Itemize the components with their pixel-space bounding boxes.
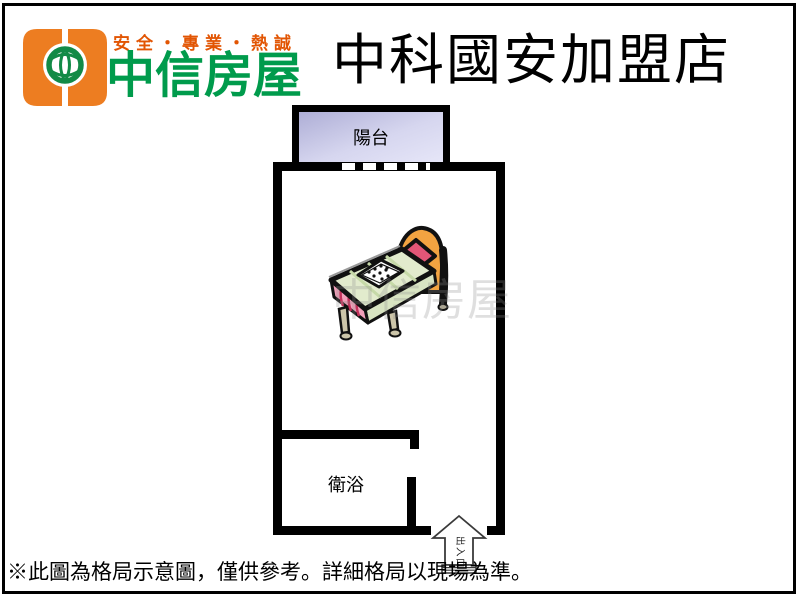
brand-logo: [23, 29, 107, 106]
brand-name: 中信房屋: [106, 51, 302, 100]
floorplan-page: 安全・專業・熱誠 中信房屋 中科國安加盟店 陽台 衛浴: [0, 0, 800, 600]
bathroom-wall-door-stub: [410, 430, 419, 449]
balcony-area: 陽台: [292, 105, 450, 162]
brand-logo-icon: [23, 29, 107, 106]
balcony-label: 陽台: [353, 124, 389, 150]
photo-watermark: 中信房屋: [332, 264, 512, 328]
bathroom-wall-top: [273, 430, 419, 439]
bed-leg-mid-foot: [390, 330, 401, 337]
store-title: 中科國安加盟店: [332, 33, 731, 88]
balcony-window-marking: [342, 163, 430, 170]
disclaimer-text: ※此圖為格局示意圖，僅供參考。詳細格局以現場為準。: [7, 556, 532, 586]
bathroom-wall-lower: [407, 477, 416, 535]
bed-leg-left-foot: [341, 333, 352, 340]
bathroom-label: 衛浴: [300, 471, 392, 497]
